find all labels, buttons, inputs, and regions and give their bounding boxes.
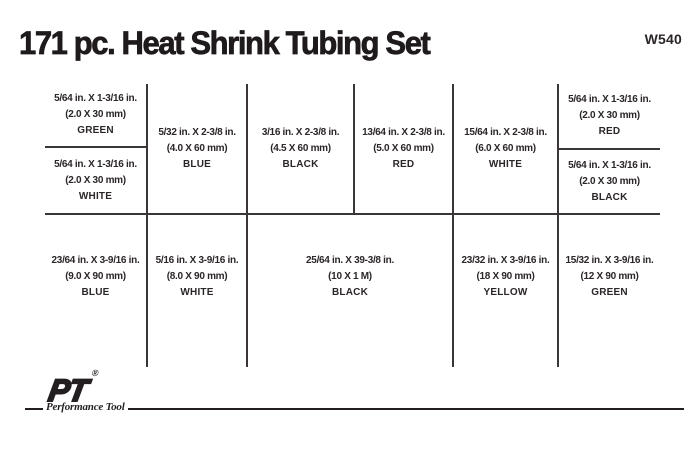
size-inches: 5/64 in. X 1-3/16 in. [54, 91, 137, 107]
tubing-color: GREEN [77, 123, 114, 139]
tubing-color: WHITE [489, 157, 522, 173]
tubing-color: WHITE [180, 285, 213, 301]
product-insert-card: 171 pc. Heat Shrink Tubing Set W540 5/64… [0, 0, 700, 450]
size-inches: 23/32 in. X 3-9/16 in. [462, 253, 550, 269]
size-metric: (6.0 X 60 mm) [475, 141, 536, 157]
tubing-color: BLACK [283, 157, 319, 173]
logo-rule: Performance Tool [25, 403, 684, 415]
size-metric: (8.0 X 90 mm) [167, 269, 228, 285]
size-metric: (4.0 X 60 mm) [167, 141, 228, 157]
tubing-color: BLACK [332, 285, 368, 301]
registered-trademark-icon: ® [91, 368, 99, 378]
size-metric: (5.0 X 60 mm) [373, 141, 434, 157]
size-inches: 13/64 in. X 2-3/8 in. [362, 125, 445, 141]
size-inches: 5/16 in. X 3-9/16 in. [156, 253, 239, 269]
compartment-black-medium: 3/16 in. X 2-3/8 in. (4.5 X 60 mm) BLACK [248, 84, 353, 213]
rule-segment-right [128, 408, 684, 410]
size-metric: (2.0 X 30 mm) [65, 173, 126, 189]
size-inches: 23/64 in. X 3-9/16 in. [52, 253, 140, 269]
tubing-color: RED [393, 157, 415, 173]
tubing-color: BLUE [81, 285, 109, 301]
tubing-color: GREEN [591, 285, 628, 301]
compartment-yellow-large: 23/32 in. X 3-9/16 in. (18 X 90 mm) YELL… [454, 215, 557, 367]
size-inches: 5/64 in. X 1-3/16 in. [568, 158, 651, 174]
size-metric: (12 X 90 mm) [580, 269, 638, 285]
size-metric: (2.0 X 30 mm) [579, 108, 640, 124]
compartment-black-wide: 25/64 in. X 39-3/8 in. (10 X 1 M) BLACK [248, 215, 452, 367]
size-metric: (2.0 X 30 mm) [579, 174, 640, 190]
size-metric: (4.5 X 60 mm) [270, 141, 331, 157]
compartment-green-small: 5/64 in. X 1-3/16 in. (2.0 X 30 mm) GREE… [45, 84, 146, 146]
size-inches: 5/64 in. X 1-3/16 in. [54, 157, 137, 173]
tubing-color: BLUE [183, 157, 211, 173]
compartment-white-large: 5/16 in. X 3-9/16 in. (8.0 X 90 mm) WHIT… [148, 215, 246, 367]
compartment-blue-medium: 5/32 in. X 2-3/8 in. (4.0 X 60 mm) BLUE [148, 84, 246, 213]
tubing-color: WHITE [79, 189, 112, 205]
compartment-white-small: 5/64 in. X 1-3/16 in. (2.0 X 30 mm) WHIT… [45, 148, 146, 213]
size-inches: 5/32 in. X 2-3/8 in. [158, 125, 235, 141]
size-metric: (9.0 X 90 mm) [65, 269, 126, 285]
compartment-blue-large: 23/64 in. X 3-9/16 in. (9.0 X 90 mm) BLU… [45, 215, 146, 367]
compartment-black-small: 5/64 in. X 1-3/16 in. (2.0 X 30 mm) BLAC… [559, 150, 660, 213]
brand-tagline: Performance Tool [43, 401, 128, 413]
tubing-color: YELLOW [484, 285, 528, 301]
size-metric: (2.0 X 30 mm) [65, 107, 126, 123]
compartment-red-small: 5/64 in. X 1-3/16 in. (2.0 X 30 mm) RED [559, 84, 660, 148]
compartment-red-medium: 13/64 in. X 2-3/8 in. (5.0 X 60 mm) RED [355, 84, 452, 213]
performance-tool-logo: PT® Performance Tool [25, 379, 684, 424]
page-title: 171 pc. Heat Shrink Tubing Set [19, 25, 429, 62]
model-number: W540 [645, 31, 682, 47]
size-inches: 15/32 in. X 3-9/16 in. [566, 253, 654, 269]
tubing-color: BLACK [592, 190, 628, 206]
rule-segment-left [25, 408, 43, 410]
size-inches: 25/64 in. X 39-3/8 in. [306, 253, 394, 269]
tubing-color: RED [599, 124, 621, 140]
size-inches: 15/64 in. X 2-3/8 in. [464, 125, 547, 141]
size-inches: 5/64 in. X 1-3/16 in. [568, 92, 651, 108]
compartment-green-large: 15/32 in. X 3-9/16 in. (12 X 90 mm) GREE… [559, 215, 660, 367]
size-inches: 3/16 in. X 2-3/8 in. [262, 125, 339, 141]
compartment-white-medium: 15/64 in. X 2-3/8 in. (6.0 X 60 mm) WHIT… [454, 84, 557, 213]
size-metric: (10 X 1 M) [328, 269, 372, 285]
size-metric: (18 X 90 mm) [476, 269, 534, 285]
